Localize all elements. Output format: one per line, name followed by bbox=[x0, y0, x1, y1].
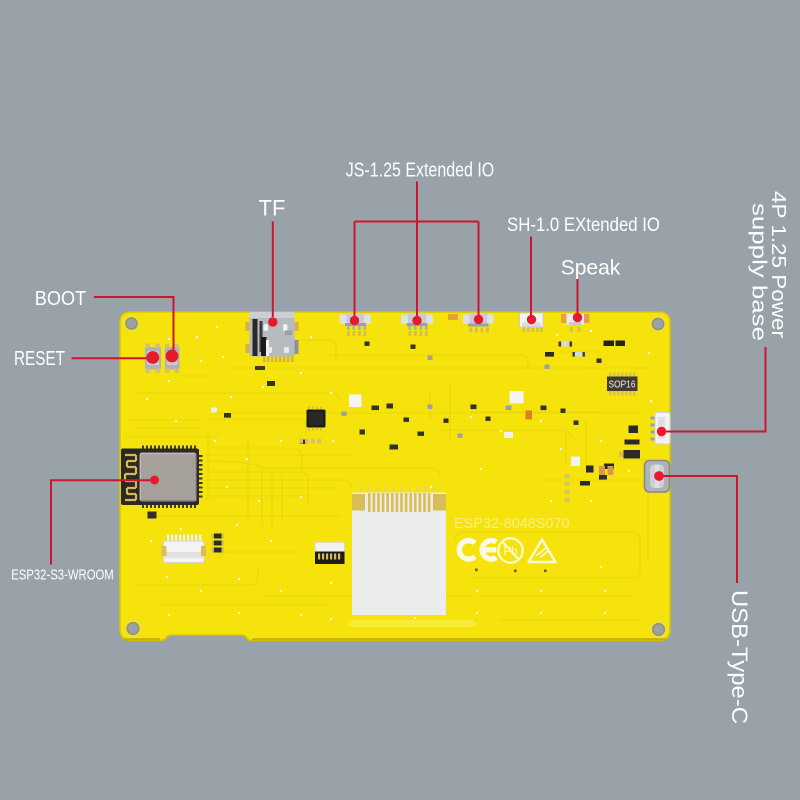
svg-text:RESET: RESET bbox=[14, 348, 65, 370]
svg-text:TF: TF bbox=[259, 196, 286, 221]
svg-text:BOOT: BOOT bbox=[35, 288, 87, 310]
svg-text:USB-Type-C: USB-Type-C bbox=[727, 590, 752, 724]
svg-text:JS-1.25 Extended IO: JS-1.25 Extended IO bbox=[346, 160, 495, 182]
svg-text:ESP32-S3-WROOM: ESP32-S3-WROOM bbox=[11, 567, 114, 583]
svg-text:SOP16: SOP16 bbox=[609, 380, 636, 391]
svg-text:Pb: Pb bbox=[503, 546, 517, 558]
svg-text:supply base: supply base bbox=[748, 203, 770, 341]
svg-text:ESP32-8048S070: ESP32-8048S070 bbox=[454, 516, 570, 532]
svg-text:SH-1.0 EXtended IO: SH-1.0 EXtended IO bbox=[507, 215, 660, 236]
svg-text:Speak: Speak bbox=[561, 257, 621, 280]
